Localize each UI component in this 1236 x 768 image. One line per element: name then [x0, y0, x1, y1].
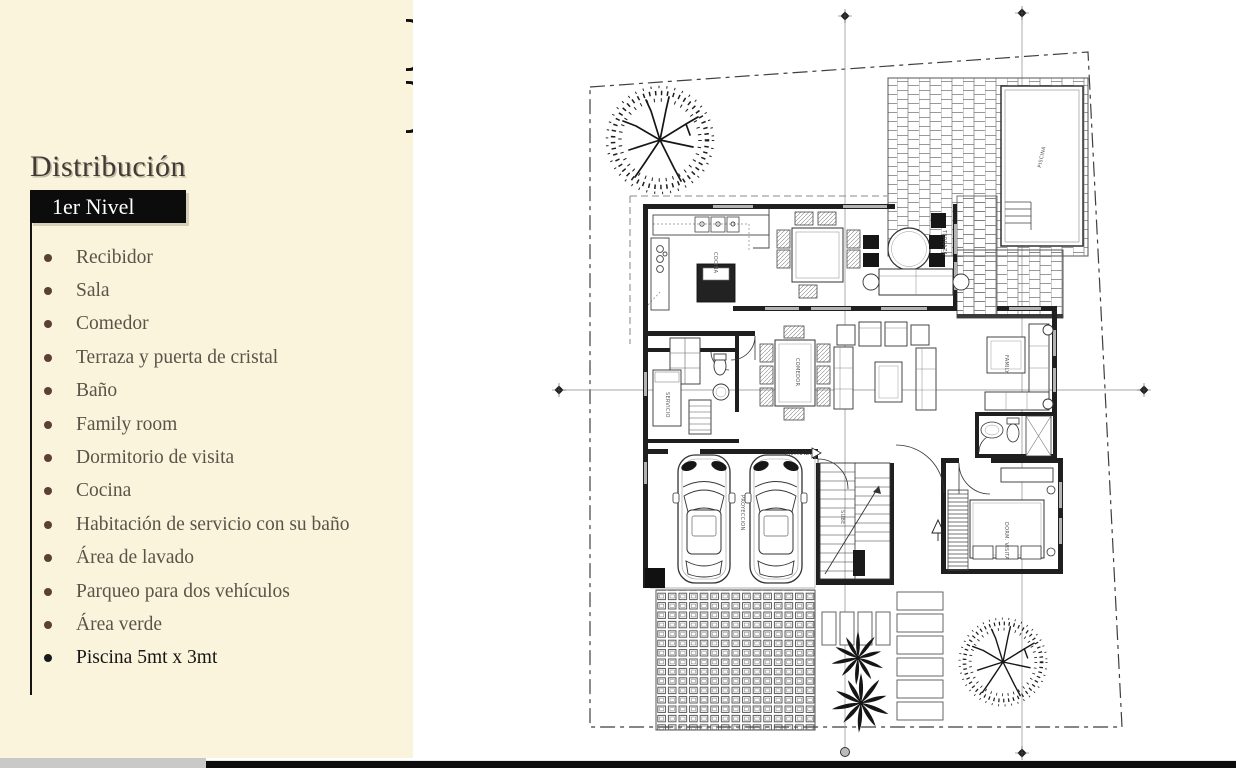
- list-item: Dormitorio de visita: [38, 441, 349, 474]
- bullet-icon: [44, 354, 52, 362]
- garage: PROYECCION ENTRADA: [645, 448, 821, 588]
- entry-step: [645, 568, 665, 588]
- bullet-icon: [44, 554, 52, 562]
- list-item: Sala: [38, 274, 349, 307]
- list-item: Terraza y puerta de cristal: [38, 341, 349, 374]
- stairs-label: SUBE: [839, 510, 845, 525]
- list-item: Recibidor: [38, 241, 349, 274]
- sala-furniture: [834, 322, 936, 410]
- walkway-slabs: [897, 592, 943, 720]
- family-label: FAMILY: [1003, 355, 1009, 374]
- floor-plan-drawing: PISCINA: [413, 0, 1236, 768]
- dresser: [1001, 468, 1053, 482]
- list-item: Piscina 5mt x 3mt: [38, 642, 349, 675]
- list-item: Área verde: [38, 608, 349, 641]
- list-item: Área de lavado: [38, 542, 349, 575]
- bullet-icon: [44, 621, 52, 629]
- stepping-stones: [822, 612, 890, 645]
- bullet-icon: [44, 254, 52, 262]
- bottom-edge-gray: [0, 758, 206, 768]
- vertical-rule: [30, 223, 32, 695]
- list-item: Baño: [38, 375, 349, 408]
- bathroom: [981, 416, 1051, 456]
- family-room: FAMILY: [985, 324, 1053, 410]
- kitchen-label: COCINA: [712, 252, 718, 274]
- garage-label: PROYECCION: [739, 495, 745, 531]
- bullet-icon: [44, 588, 52, 596]
- bullet-icon: [44, 387, 52, 395]
- feature-list: Recibidor Sala Comedor Terraza y puerta …: [38, 241, 349, 675]
- setback-line: [630, 196, 887, 344]
- list-item: Family room: [38, 408, 349, 441]
- list-item: Habitación de servicio con su baño: [38, 508, 349, 541]
- paver-driveway: [656, 590, 815, 730]
- tree-icon: [607, 87, 713, 193]
- page-title: Distribución: [30, 150, 186, 184]
- bullet-icon: [44, 654, 52, 662]
- distribution-panel: Distribución 1er Nivel Recibidor Sala Co…: [0, 0, 413, 758]
- level-badge: 1er Nivel: [30, 190, 186, 223]
- bullet-icon: [44, 521, 52, 529]
- bottom-edge-black: [206, 760, 1236, 768]
- bullet-icon: [44, 287, 52, 295]
- shrub-icon: [960, 619, 1047, 706]
- floor-plan: PISCINA: [413, 0, 1236, 768]
- bullet-icon: [44, 320, 52, 328]
- terraza-furniture: TERRAZA: [777, 212, 969, 298]
- terraza-label: TERRAZA: [941, 229, 947, 256]
- list-item: Comedor: [38, 308, 349, 341]
- service-stairs: [689, 400, 711, 434]
- bullet-icon: [44, 487, 52, 495]
- slide: Distribución 1er Nivel Recibidor Sala Co…: [0, 0, 1236, 768]
- maid-label: SERVICIO: [664, 392, 670, 418]
- dining-label: COMEDOR: [794, 358, 800, 386]
- bedroom-label: DORM. VISITA: [1003, 522, 1009, 560]
- bedroom: DORM. VISITA: [948, 468, 1055, 570]
- dining-table: COMEDOR: [760, 326, 830, 420]
- car-1: [673, 455, 735, 583]
- list-item: Cocina: [38, 475, 349, 508]
- pool: PISCINA: [1001, 86, 1083, 246]
- entrada-label: ENTRADA: [785, 451, 814, 457]
- service-area: SERVICIO: [653, 338, 729, 434]
- closet: [948, 490, 968, 570]
- car-2: [745, 455, 807, 583]
- bullet-icon: [44, 454, 52, 462]
- staircase: SUBE: [820, 463, 890, 579]
- palm-2-icon: [832, 673, 890, 732]
- bullet-icon: [44, 421, 52, 429]
- list-item: Parqueo para dos vehículos: [38, 575, 349, 608]
